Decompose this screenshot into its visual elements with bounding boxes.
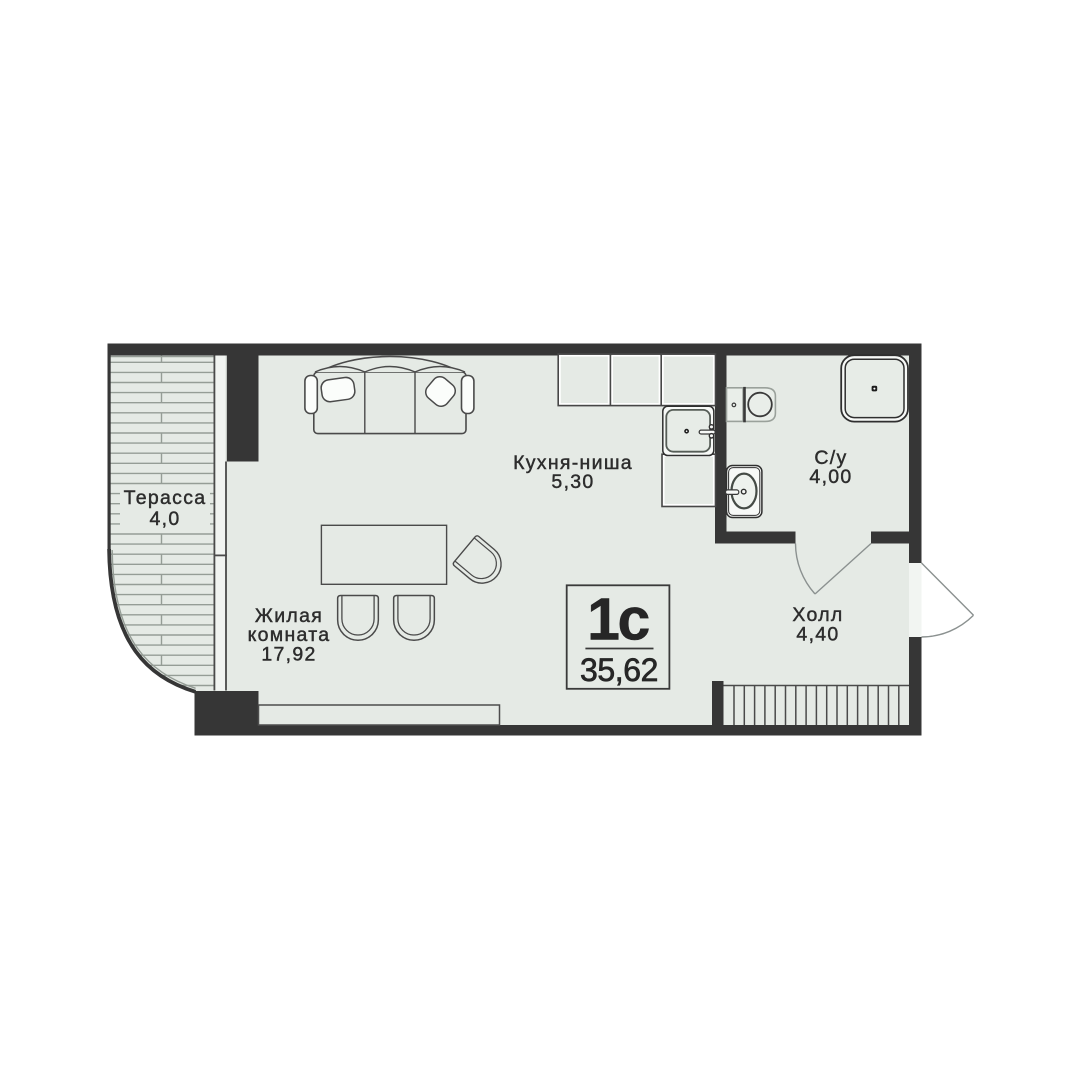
svg-text:4,0: 4,0 [149, 508, 180, 530]
svg-text:4,40: 4,40 [796, 624, 839, 646]
svg-text:35,62: 35,62 [580, 652, 658, 688]
svg-text:5,30: 5,30 [551, 471, 594, 493]
svg-text:Терасса: Терасса [124, 487, 207, 509]
svg-text:1с: 1с [587, 587, 649, 653]
svg-text:17,92: 17,92 [261, 644, 316, 666]
svg-text:4,00: 4,00 [809, 466, 852, 488]
